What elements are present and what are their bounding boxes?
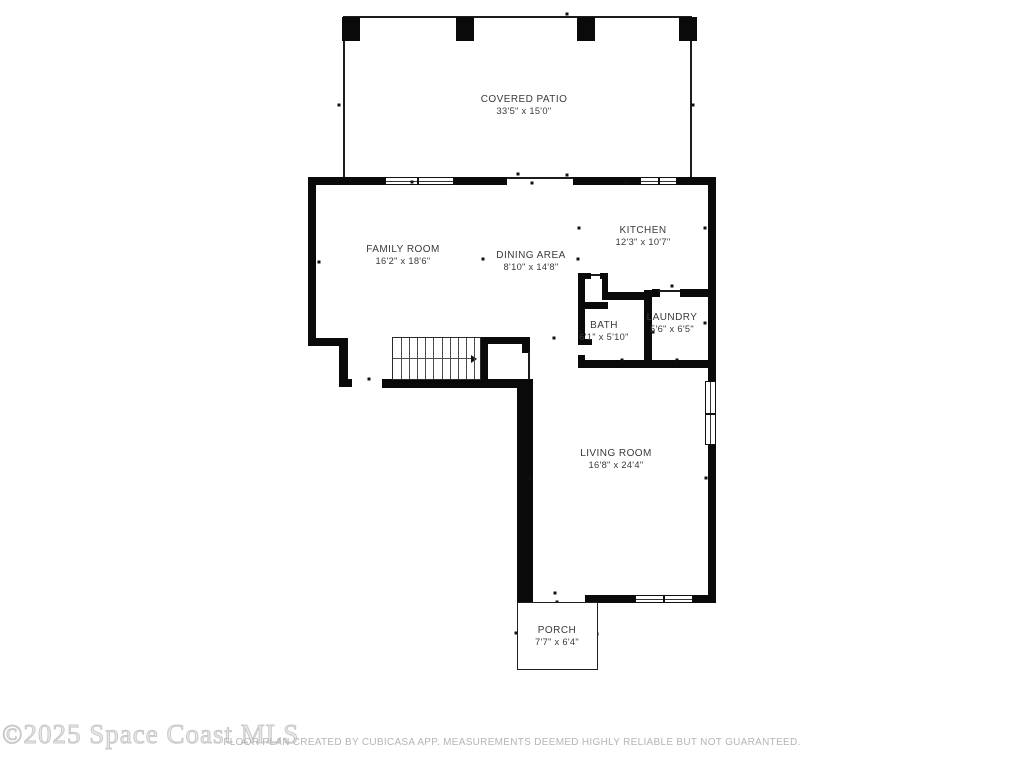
wall-segment xyxy=(480,337,530,344)
measure-tick xyxy=(317,260,320,263)
measure-tick xyxy=(670,284,673,287)
measure-tick xyxy=(367,377,370,380)
room-dims: 5'6" x 6'5" xyxy=(647,324,698,334)
room-dims: 16'2" x 18'6" xyxy=(366,256,439,266)
wall-segment xyxy=(517,379,533,603)
room-label-family-room: FAMILY ROOM 16'2" x 18'6" xyxy=(366,244,439,266)
window-mullion xyxy=(663,596,665,602)
room-name: LAUNDRY xyxy=(647,312,698,323)
patio-column xyxy=(342,17,360,41)
room-name: PORCH xyxy=(535,625,579,636)
patio-boundary-line xyxy=(343,16,691,18)
wall-segment xyxy=(480,337,488,388)
room-name: BATH xyxy=(579,320,628,331)
window-mullion xyxy=(417,178,419,184)
wall-segment xyxy=(578,360,716,368)
stair-tread-line xyxy=(474,338,475,379)
room-dims: 12'3" x 10'7" xyxy=(616,237,671,247)
window-glass-line xyxy=(386,181,453,182)
wall-segment xyxy=(454,177,507,185)
measure-tick xyxy=(530,181,533,184)
room-dims: 6'1" x 5'10" xyxy=(579,332,628,342)
measure-tick xyxy=(481,257,484,260)
window-mullion xyxy=(706,413,715,415)
room-dims: 16'8" x 24'4" xyxy=(580,460,652,470)
room-label-laundry: LAUNDRY 5'6" x 6'5" xyxy=(647,312,698,334)
window xyxy=(640,177,677,185)
understair-closet-edge-line xyxy=(528,352,530,380)
room-label-porch: PORCH 7'7" x 6'4" xyxy=(535,625,579,647)
room-label-bath: BATH 6'1" x 5'10" xyxy=(579,320,628,342)
measure-tick xyxy=(528,476,531,479)
stair-tread-line xyxy=(458,338,459,379)
wall-segment xyxy=(693,595,716,603)
measure-tick xyxy=(576,257,579,260)
measure-tick xyxy=(704,476,707,479)
wall-segment xyxy=(680,289,716,297)
room-label-dining-area: DINING AREA 8'10" x 14'8" xyxy=(496,250,565,272)
room-name: KITCHEN xyxy=(616,225,671,236)
stair-tread-line xyxy=(433,338,434,379)
measure-tick xyxy=(565,173,568,176)
window xyxy=(705,381,716,445)
window xyxy=(385,177,454,185)
wall-segment xyxy=(708,445,716,603)
measure-tick xyxy=(337,103,340,106)
window-mullion xyxy=(658,178,660,184)
room-dims: 8'10" x 14'8" xyxy=(496,262,565,272)
stair-tread-line xyxy=(401,338,402,379)
stair-tread-line xyxy=(450,338,451,379)
stair-tread-line xyxy=(466,338,467,379)
wall-segment xyxy=(339,379,352,387)
patio-column xyxy=(577,17,595,41)
staircase xyxy=(392,337,481,380)
closet-door-opening-line xyxy=(591,274,600,276)
stair-tread-line xyxy=(409,338,410,379)
measure-tick xyxy=(675,358,678,361)
measure-tick xyxy=(703,226,706,229)
laundry-door-opening-line xyxy=(658,290,680,292)
measure-tick xyxy=(624,180,627,183)
room-label-living-room: LIVING ROOM 16'8" x 24'4" xyxy=(580,448,652,470)
measure-tick xyxy=(410,180,413,183)
window xyxy=(635,595,693,603)
room-name: FAMILY ROOM xyxy=(366,244,439,255)
measure-tick xyxy=(577,226,580,229)
room-name: COVERED PATIO xyxy=(481,94,568,105)
room-dims: 7'7" x 6'4" xyxy=(535,637,579,647)
room-name: DINING AREA xyxy=(496,250,565,261)
room-label-kitchen: KITCHEN 12'3" x 10'7" xyxy=(616,225,671,247)
measure-tick xyxy=(620,358,623,361)
patio-column xyxy=(679,17,697,41)
room-label-covered-patio: COVERED PATIO 33'5" x 15'0" xyxy=(481,94,568,116)
room-name: LIVING ROOM xyxy=(580,448,652,459)
stair-tread-line xyxy=(442,338,443,379)
wall-segment xyxy=(573,177,640,185)
wall-segment xyxy=(308,177,385,185)
wall-segment xyxy=(578,273,591,279)
patio-door-opening-line xyxy=(507,177,573,179)
measure-tick xyxy=(565,12,568,15)
measure-tick xyxy=(691,103,694,106)
measure-tick xyxy=(516,172,519,175)
room-dims: 33'5" x 15'0" xyxy=(481,106,568,116)
wall-segment xyxy=(308,338,348,346)
wall-segment xyxy=(708,177,716,381)
measure-tick xyxy=(552,336,555,339)
patio-column xyxy=(456,17,474,41)
stair-tread-line xyxy=(425,338,426,379)
measure-tick xyxy=(703,321,706,324)
wall-segment xyxy=(382,379,518,388)
disclaimer-text: FLOOR PLAN CREATED BY CUBICASA APP. MEAS… xyxy=(0,737,1024,748)
stair-tread-line xyxy=(417,338,418,379)
wall-segment xyxy=(578,302,608,309)
measure-tick xyxy=(553,591,556,594)
wall-segment xyxy=(308,177,316,346)
floor-plan-canvas: COVERED PATIO 33'5" x 15'0" FAMILY ROOM … xyxy=(0,0,1024,768)
